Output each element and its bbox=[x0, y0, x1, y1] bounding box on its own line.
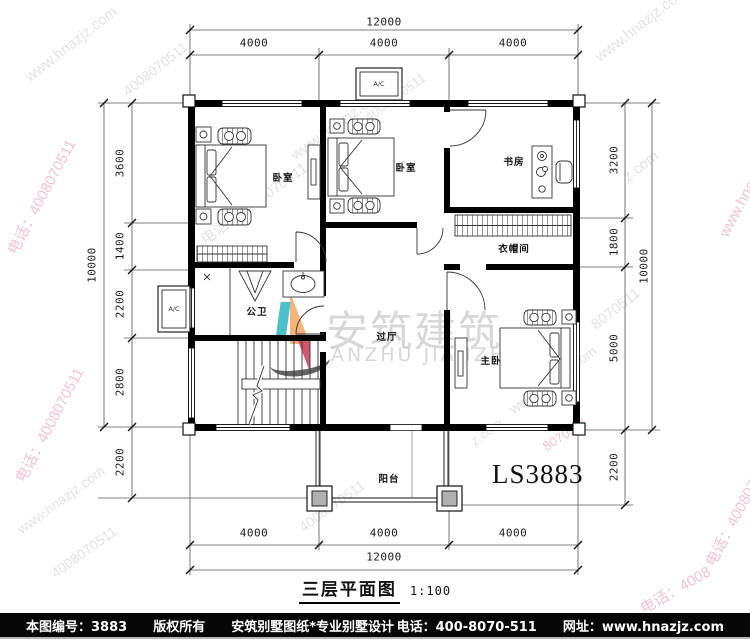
dim-left-seg-1: 3600 bbox=[114, 149, 127, 178]
dim-left-seg-3: 2200 bbox=[114, 290, 127, 319]
room-label-cloakroom: 衣帽间 bbox=[498, 241, 530, 255]
dim-left-below: 2200 bbox=[114, 448, 127, 477]
footer-brand-line: 安筑别墅图纸*专业别墅设计 bbox=[231, 616, 394, 635]
dim-left-total: 10000 bbox=[86, 247, 99, 283]
dim-left-seg-4: 2800 bbox=[114, 368, 127, 397]
dim-bottom-seg-1: 4000 bbox=[240, 527, 269, 540]
footer-copyright: 版权所有 bbox=[153, 616, 205, 635]
footer-sheet-no: 本图编号：3883 bbox=[26, 616, 127, 635]
drawing-scale: 1:100 bbox=[410, 584, 451, 598]
dim-right-seg-3: 5000 bbox=[608, 334, 621, 363]
room-label-master: 主卧 bbox=[480, 353, 501, 367]
ac-label-top: A/C bbox=[373, 80, 384, 88]
room-label-balcony: 阳台 bbox=[378, 471, 399, 485]
master-furniture bbox=[455, 310, 576, 406]
dim-right-seg-2: 1800 bbox=[608, 228, 621, 257]
footer-right-group: 电话：400-8070-511 网址：www.hnazjz.com bbox=[397, 616, 724, 635]
bathroom-fixtures bbox=[204, 268, 324, 335]
stairs bbox=[238, 341, 320, 424]
dim-left-seg-2: 1400 bbox=[114, 232, 127, 261]
bedroom1-furniture bbox=[196, 127, 320, 262]
footer-site: 网址：www.hnazjz.com bbox=[563, 616, 724, 635]
dim-top-seg-3: 4000 bbox=[499, 37, 528, 50]
room-label-bathroom: 公卫 bbox=[246, 304, 267, 318]
dim-top-total: 12000 bbox=[366, 16, 402, 29]
dim-bottom-seg-3: 4000 bbox=[499, 527, 528, 540]
room-label-study: 书房 bbox=[503, 154, 524, 168]
dim-top-seg-1: 4000 bbox=[240, 37, 269, 50]
dim-right-total: 10000 bbox=[638, 248, 651, 284]
footer-bottom-line bbox=[0, 637, 750, 639]
footer-left-group: 本图编号：3883 版权所有 安筑别墅图纸*专业别墅设计 bbox=[26, 616, 394, 635]
room-label-bedroom2: 卧室 bbox=[395, 160, 416, 174]
footer-bar: 本图编号：3883 版权所有 安筑别墅图纸*专业别墅设计 电话：400-8070… bbox=[0, 613, 750, 637]
room-label-bedroom1: 卧室 bbox=[272, 170, 293, 184]
bedroom2-furniture bbox=[328, 119, 394, 213]
floorplan-drawing bbox=[0, 0, 750, 640]
room-label-hall: 过厅 bbox=[376, 329, 397, 343]
dim-bottom-seg-2: 4000 bbox=[370, 527, 399, 540]
cloakroom-rail bbox=[455, 215, 571, 236]
floorplan-page: www.hnazjz.com 4008070511 www.hnazjz.com… bbox=[0, 0, 750, 640]
study-furniture bbox=[532, 146, 572, 198]
dim-bottom-total: 12000 bbox=[366, 551, 402, 564]
drawing-title: 三层平面图 bbox=[299, 575, 400, 604]
dim-right-below: 2200 bbox=[608, 453, 621, 482]
dim-right-seg-1: 3200 bbox=[608, 146, 621, 175]
dim-top-seg-2: 4000 bbox=[370, 37, 399, 50]
plan-code: LS3883 bbox=[492, 459, 584, 490]
footer-phone: 电话：400-8070-511 bbox=[397, 616, 537, 635]
drawing-title-row: 三层平面图 1:100 bbox=[0, 575, 750, 604]
ac-label-left: A/C bbox=[168, 305, 179, 313]
